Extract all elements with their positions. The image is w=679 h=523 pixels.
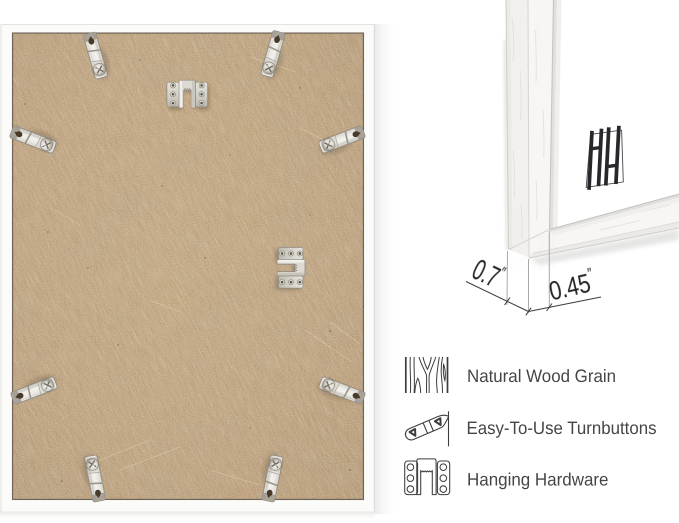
- svg-text:Easy-To-Use Turnbuttons: Easy-To-Use Turnbuttons: [467, 418, 657, 438]
- svg-text:Natural Wood Grain: Natural Wood Grain: [467, 366, 616, 386]
- svg-text:0.45″: 0.45″: [546, 265, 598, 307]
- svg-text:Hanging Hardware: Hanging Hardware: [467, 470, 609, 490]
- svg-text:0.7″: 0.7″: [467, 252, 508, 296]
